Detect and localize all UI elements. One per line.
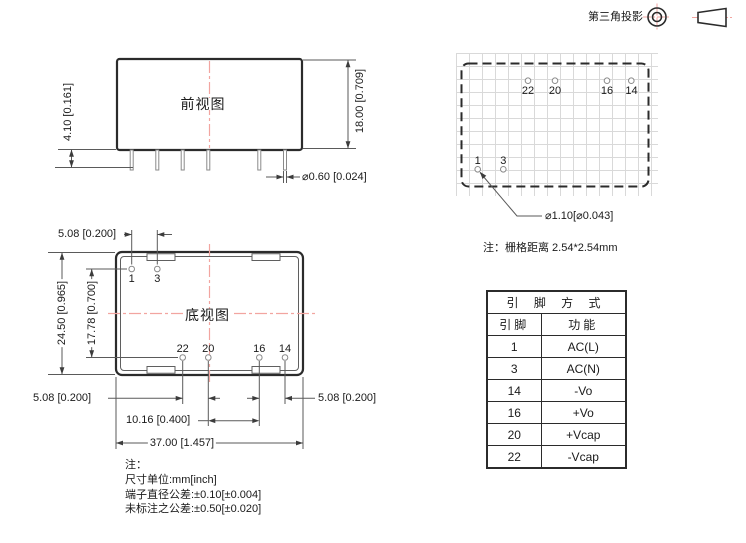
grid-pin-label-22: 22 xyxy=(522,85,534,97)
pin-number: 3 xyxy=(487,358,541,380)
grid-dim-hole-diameter: ⌀1.10[⌀0.043] xyxy=(545,210,613,222)
pin-number: 1 xyxy=(487,336,541,358)
bottom-dim-row-pitch: 17.78 [0.700] xyxy=(86,279,98,347)
bottom-pin-label-22: 22 xyxy=(177,343,189,355)
drawing-linework xyxy=(0,0,746,543)
dim-pin-length-lines xyxy=(55,150,133,168)
bottom-pin-label-3: 3 xyxy=(154,273,160,285)
hole-diameter-leader xyxy=(480,173,542,217)
pin-number: 20 xyxy=(487,424,541,446)
note-general-tolerance: 未标注之公差:±0.50[±0.020] xyxy=(125,500,261,516)
pin-function: -Vo xyxy=(541,380,626,402)
bottom-dim-pitch-left: 5.08 [0.200] xyxy=(33,392,91,404)
bottom-pin-label-1: 1 xyxy=(129,273,135,285)
projection-cone-icon xyxy=(692,9,732,27)
table-row: 3 AC(N) xyxy=(487,358,626,380)
third-angle-projection-symbol xyxy=(643,4,732,31)
front-view-dim-body-height: 18.00 [0.709] xyxy=(354,69,366,133)
pin-number: 22 xyxy=(487,446,541,469)
bottom-view-title: 底视图 xyxy=(183,309,232,321)
grid-pin-label-16: 16 xyxy=(601,85,613,97)
pin-table-col-pin: 引脚 xyxy=(487,314,541,336)
pin-function: AC(L) xyxy=(541,336,626,358)
projection-label: 第三角投影 xyxy=(588,11,643,23)
grid-note: 注：栅格距离 2.54*2.54mm xyxy=(483,242,617,254)
bottom-pin-label-20: 20 xyxy=(202,343,214,355)
pin-table-title: 引 脚 方 式 xyxy=(487,291,626,314)
front-view-dim-pin-length: 4.10 [0.161] xyxy=(62,83,74,141)
table-row: 16 +Vo xyxy=(487,402,626,424)
front-view-pins xyxy=(130,150,286,170)
bottom-pin-label-16: 16 xyxy=(253,343,265,355)
bottom-dim-pitch-top: 5.08 [0.200] xyxy=(58,228,116,240)
table-row: 20 +Vcap xyxy=(487,424,626,446)
table-row: 1 AC(L) xyxy=(487,336,626,358)
table-row: 14 -Vo xyxy=(487,380,626,402)
pin-function: AC(N) xyxy=(541,358,626,380)
pin-function: +Vcap xyxy=(541,424,626,446)
notes-title: 注： xyxy=(125,456,147,472)
grid-pin-label-20: 20 xyxy=(549,85,561,97)
front-view-drawing xyxy=(55,59,356,183)
pin-function: -Vcap xyxy=(541,446,626,469)
pin-function-table: 引 脚 方 式 引脚 功能 1 AC(L) 3 AC(N) 14 -Vo 16 … xyxy=(486,290,627,469)
grid-pin-label-14: 14 xyxy=(625,85,637,97)
table-row: 22 -Vcap xyxy=(487,446,626,469)
pin-number: 16 xyxy=(487,402,541,424)
pin-function: +Vo xyxy=(541,402,626,424)
front-view-title: 前视图 xyxy=(179,98,228,110)
bottom-dim-body-height: 24.50 [0.965] xyxy=(56,279,68,347)
pin-table-col-func: 功能 xyxy=(541,314,626,336)
grid-pin-label-3: 3 xyxy=(500,155,506,167)
grid-pin-label-1: 1 xyxy=(475,155,481,167)
mechanical-drawing-page: 第三角投影 前视图 4.10 [0.161] 18.00 [0.709] ⌀0.… xyxy=(0,0,746,543)
bottom-dim-pitch-right: 5.08 [0.200] xyxy=(318,392,376,404)
dim-body-height-lines xyxy=(303,60,356,149)
projection-circle-icon xyxy=(643,4,671,31)
bottom-dim-pitch-mid: 10.16 [0.400] xyxy=(126,414,190,426)
bottom-pin-label-14: 14 xyxy=(279,343,291,355)
pin-number: 14 xyxy=(487,380,541,402)
bottom-dim-body-width: 37.00 [1.457] xyxy=(148,437,216,449)
front-view-dim-pin-diameter: ⌀0.60 [0.024] xyxy=(302,171,367,183)
